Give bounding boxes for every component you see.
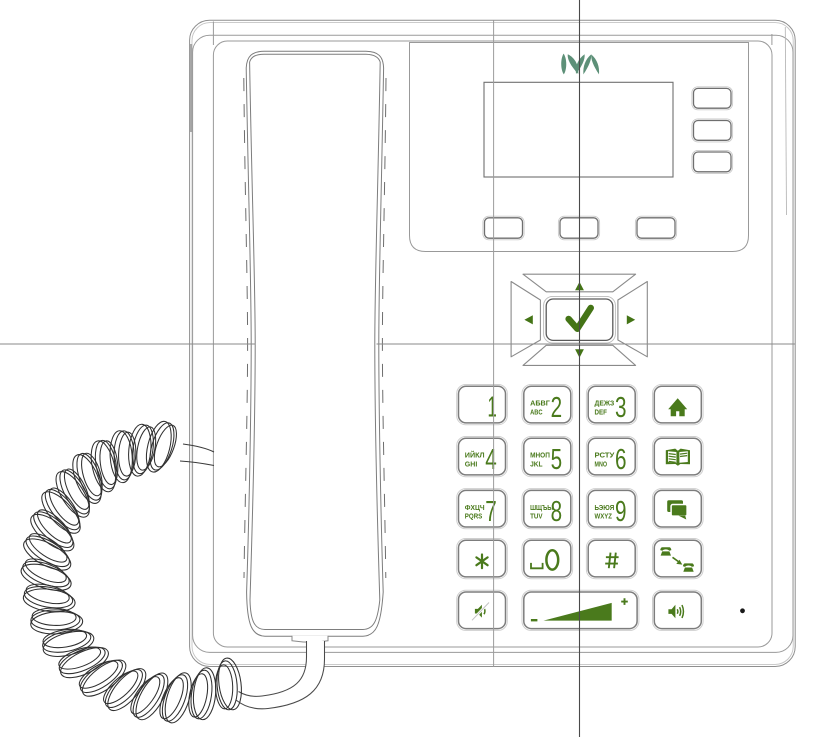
svg-text:9: 9 xyxy=(615,496,627,528)
svg-text:5: 5 xyxy=(551,444,563,476)
svg-text:8: 8 xyxy=(551,496,563,528)
svg-text:6: 6 xyxy=(615,444,627,476)
svg-text:РСТУ: РСТУ xyxy=(595,451,615,460)
svg-text:7: 7 xyxy=(485,496,497,528)
svg-text:МНОП: МНОП xyxy=(530,451,550,460)
svg-text:WXYZ: WXYZ xyxy=(595,512,613,521)
svg-text:PQRS: PQRS xyxy=(465,512,483,521)
svg-text:JKL: JKL xyxy=(530,459,543,468)
svg-text:2: 2 xyxy=(551,392,563,424)
svg-text:АБВГ: АБВГ xyxy=(530,399,551,408)
svg-text:4: 4 xyxy=(485,444,497,476)
svg-text:ШЩЪЫ: ШЩЪЫ xyxy=(530,503,553,512)
svg-text:3: 3 xyxy=(615,392,627,424)
svg-text:DEF: DEF xyxy=(595,407,608,416)
svg-text:ДЕЖЗ: ДЕЖЗ xyxy=(595,399,615,408)
svg-text:TUV: TUV xyxy=(530,512,543,521)
svg-text:ИЙКЛ: ИЙКЛ xyxy=(465,451,485,460)
svg-text:MNO: MNO xyxy=(595,459,608,468)
svg-text:ФХЦЧ: ФХЦЧ xyxy=(465,503,485,512)
svg-text:ЬЭЮЯ: ЬЭЮЯ xyxy=(595,503,615,512)
svg-text:1: 1 xyxy=(488,392,497,424)
svg-text:ABC: ABC xyxy=(530,407,543,416)
svg-text:GHI: GHI xyxy=(465,459,478,468)
